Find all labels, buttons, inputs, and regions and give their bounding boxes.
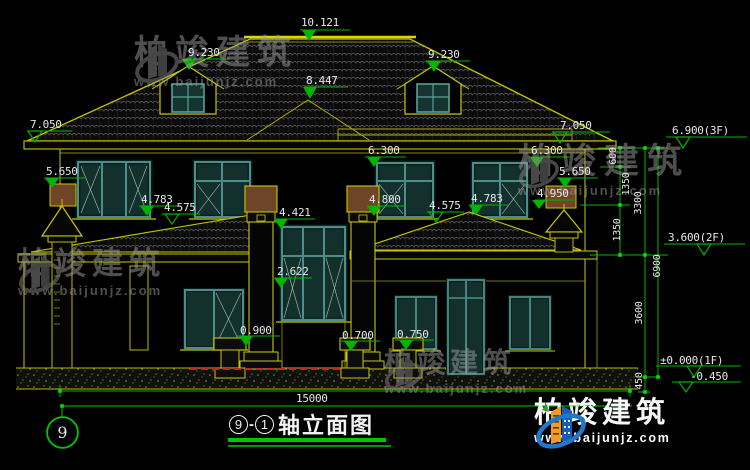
brand-logo-icon: [534, 399, 588, 453]
elev-label: 4.950: [537, 188, 569, 199]
axis-bubble-end: 1: [255, 415, 274, 434]
elev-label: 7.050: [30, 119, 62, 130]
title-underline-thin: [228, 445, 391, 447]
elev-label: 2.622: [277, 266, 309, 277]
main-roof: [24, 37, 616, 149]
dimension-label: 450: [635, 372, 645, 389]
axis-separator: -: [249, 416, 254, 433]
ground: [16, 368, 638, 389]
elev-label: 4.783: [471, 193, 503, 204]
dimension-label: 15000: [296, 393, 328, 404]
elev-label: -0.450: [690, 371, 728, 382]
elev-label: 7.050: [560, 120, 592, 131]
site-logo: 柏竣建筑 www.baijunjz.com: [534, 399, 671, 445]
cad-canvas: 柏竣建筑 www.baijunjz.com 柏竣建筑 www.baijunjz.…: [0, 0, 750, 470]
elev-label: 4.575: [429, 200, 461, 211]
elev-label: 4.421: [279, 207, 311, 218]
title-underline-thick: [228, 438, 386, 442]
dimension-label: 1350: [622, 173, 632, 196]
elev-label: 9.230: [188, 47, 220, 58]
dimension-label: 3300: [634, 192, 644, 215]
dimension-label: 3600: [635, 302, 645, 325]
elev-label: 0.750: [397, 329, 429, 340]
drawing-title-text: 轴立面图: [278, 408, 374, 440]
elev-label: 0.700: [342, 330, 374, 341]
dimension-label: 600: [609, 147, 619, 164]
axis-bubble-start: 9: [229, 415, 248, 434]
elev-label: 8.447: [306, 75, 338, 86]
elev-label: 0.900: [240, 325, 272, 336]
elev-label: 6.300: [368, 145, 400, 156]
grid-bubble: 9: [47, 417, 78, 448]
elev-label: 6.300: [531, 145, 563, 156]
grid-bubble-label: 9: [57, 423, 67, 442]
elev-label: 5.650: [559, 166, 591, 177]
elev-label: 6.900(3F): [672, 125, 729, 136]
elev-label: 5.650: [46, 166, 78, 177]
drawing-title: 9 - 1 轴立面图: [229, 408, 374, 440]
elev-label: ±0.000(1F): [660, 355, 723, 366]
elev-label: 4.800: [369, 194, 401, 205]
elev-label: 4.575: [164, 202, 196, 213]
dimension-label: 6900: [653, 255, 663, 278]
elev-label: 10.121: [301, 17, 339, 28]
elev-label: 9.230: [428, 49, 460, 60]
elev-label: 3.600(2F): [668, 232, 725, 243]
dimension-label: 1350: [613, 219, 623, 242]
